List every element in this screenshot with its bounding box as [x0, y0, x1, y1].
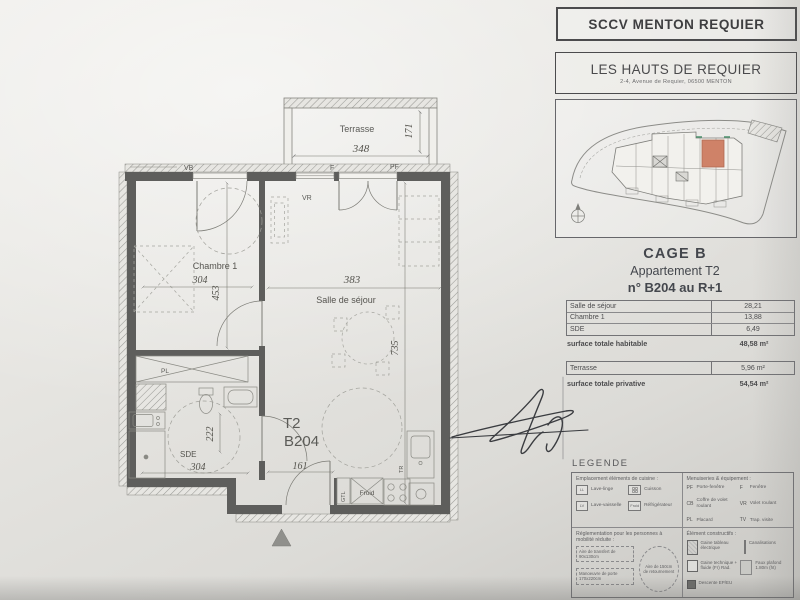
legend-construction-title: Élément constructifs : [687, 531, 791, 537]
cooktop-icon [628, 485, 641, 495]
froid-label: Réfrigérateur [644, 503, 678, 509]
legend-kitchen-title: Emplacement éléments de cuisine : [576, 476, 658, 482]
pipe-line-icon [744, 540, 746, 554]
bathroom-width-dim: 304 [190, 462, 206, 473]
vr-code: VR [302, 195, 312, 202]
habitable-total-label: surface totale habitable [566, 339, 713, 348]
pl-legend-label: Placard [696, 518, 736, 524]
bedroom-pmr-circle [196, 188, 262, 254]
terrace-left-wall [284, 108, 292, 170]
site-plan-box [555, 99, 797, 238]
pmr-door-box: Manoeuvre de porte 170x220cm [576, 568, 634, 584]
unit-header: CAGE B Appartement T2 n° B204 au R+1 [560, 246, 790, 295]
legend-item: Descente EP/EU [687, 580, 741, 589]
terrace-table: Terrasse 5,96 m² [566, 361, 795, 375]
bathroom-label: SDE [180, 450, 196, 459]
vb-window [193, 173, 247, 179]
lv-code-box: LV [576, 501, 588, 511]
bedroom: Chambre 1 304 453 [134, 183, 262, 348]
unit-m2: m² [760, 339, 769, 348]
site-annex-plot [748, 120, 782, 142]
ll-code-box: LL [576, 485, 588, 495]
f-code: F [330, 165, 334, 172]
site-plan [556, 100, 794, 235]
gtl-code: GTL [341, 491, 347, 502]
table-row: Chambre 1 13,88 [567, 312, 794, 324]
vb-code: VB [184, 165, 194, 172]
bedroom-width-dim: 304 [192, 275, 208, 286]
wardrobe-furniture [271, 197, 288, 243]
froid-code-box: Froid [628, 501, 641, 511]
electrical-cabinet-icon [687, 540, 698, 555]
terrace-label: Terrasse [340, 124, 375, 134]
area-value: 6,49 [711, 324, 794, 335]
bathroom: PL SDE 304 222 [129, 356, 257, 478]
unit-m2: m² [757, 365, 765, 372]
terrace-row-label: Terrasse [567, 365, 711, 372]
living-room: VR Salle de séjour 383 735 T2 B204 [268, 183, 440, 503]
false-ceiling-icon [740, 560, 752, 575]
pf-door [339, 173, 397, 179]
terrace-row-value: 5,96 [741, 365, 755, 372]
legend-item-label: Faux plafond 1.80m (ht) [755, 560, 790, 571]
bedroom-door-arc [217, 301, 262, 346]
project-title-box: LES HAUTS DE REQUIER 2-4, Avenue de Requ… [555, 52, 797, 94]
pf-legend-label: Porte-fenêtre [696, 485, 736, 491]
table-row: Salle de séjour 28,21 [567, 301, 794, 312]
pmr-turning-circle: Aire de 150cm de retournement [639, 546, 679, 592]
living-pmr-circle [322, 388, 402, 468]
area-label: SDE [567, 326, 711, 333]
legend-title: LEGENDE [572, 458, 629, 469]
tv-legend-code: TV [740, 517, 747, 523]
project-address: 2-4, Avenue de Requier, 06500 MENTON [620, 79, 732, 85]
area-value: 13,88 [711, 313, 794, 324]
bedroom-height-dim: 453 [211, 286, 222, 301]
tv-legend-label: Trap. visite [750, 518, 790, 524]
cb-legend-label: Coffre de volet roulant [696, 498, 736, 510]
project-title: LES HAUTS DE REQUIER [591, 62, 762, 77]
pf-legend-code: PF [687, 485, 694, 491]
froid-code: Froid [360, 490, 375, 497]
developer-title-box: SCCV MENTON REQUIER [556, 7, 797, 41]
legend-item: Canalisations [740, 540, 790, 555]
living-height-dim: 735 [390, 341, 401, 356]
areas-panel: Salle de séjour 28,21 Chambre 1 13,88 SD… [566, 300, 795, 388]
living-label: Salle de séjour [316, 295, 376, 305]
area-label: Salle de séjour [567, 303, 711, 310]
cb-legend-code: CB [687, 501, 694, 507]
legend-item-label: Gaine tableau électrique [701, 540, 741, 551]
apartment-type: Appartement T2 [560, 264, 790, 278]
legend-grid: Emplacement éléments de cuisine : LL Lav… [571, 472, 794, 598]
habitable-total-row: surface totale habitable 48,58 m² [566, 339, 795, 348]
cooktop-label: Cuisson [644, 487, 678, 493]
legend-item-label: Gaine technique + fluide (Fr) Rad. [701, 560, 741, 571]
pf-code: PF [390, 164, 399, 171]
table-furniture [332, 306, 399, 375]
vr-legend-label: Volet roulant [750, 501, 790, 507]
apartment-number: n° B204 au R+1 [560, 280, 790, 295]
privative-total-row: surface totale privative 54,54 m² [566, 379, 795, 388]
developer-title: SCCV MENTON REQUIER [588, 17, 764, 32]
legend-item: Faux plafond 1.80m (ht) [740, 560, 790, 575]
table-row: SDE 6,49 [567, 323, 794, 335]
highlighted-unit [702, 140, 724, 167]
hall-width-dim: 161 [293, 461, 308, 472]
privative-total-label: surface totale privative [566, 379, 713, 388]
ll-label: Lave-linge [591, 487, 625, 493]
legend-item-label: Descente EP/EU [699, 580, 733, 585]
legend-item: Gaine tableau électrique [687, 540, 741, 555]
bathroom-height-dim: 222 [205, 427, 216, 442]
f-legend-code: F [740, 485, 747, 491]
terrace-right-wall [429, 108, 437, 170]
pl-legend-code: PL [687, 517, 694, 523]
pl-code: PL [161, 368, 169, 375]
legend-joinery-cell: Menuiseries & équipement : PF Porte-fenê… [683, 473, 794, 528]
signature [450, 377, 588, 459]
areas-table: Salle de séjour 28,21 Chambre 1 13,88 SD… [566, 300, 795, 336]
f-legend-label: Fenêtre [750, 485, 790, 491]
terrace-width-dim: 348 [352, 143, 370, 155]
technical-duct-icon [687, 560, 698, 572]
unit-m2: m² [760, 379, 769, 388]
compass-icon [572, 204, 585, 223]
terrace-depth-dim: 171 [404, 124, 415, 139]
unit-id-line2: B204 [284, 433, 319, 450]
pmr-transfer-box: Aire de transfert de 90x130cm [576, 546, 634, 562]
legend-construction-cell: Élément constructifs : Gaine tableau éle… [683, 528, 794, 597]
legend-joinery-title: Menuiseries & équipement : [687, 476, 791, 482]
area-value: 28,21 [711, 301, 794, 312]
terrace: Terrasse 348 171 [284, 98, 437, 170]
table-row: Terrasse 5,96 m² [567, 362, 794, 374]
privative-total-value: 54,54 [740, 379, 758, 388]
bed-furniture [134, 246, 194, 312]
unit-id-line1: T2 [283, 415, 301, 432]
legend-pmr-title: Réglementation pour les personnes à mobi… [576, 531, 666, 543]
lv-label: Lave-vaisselle [591, 503, 625, 509]
entrance-marker [272, 529, 291, 546]
downpipe-icon [687, 580, 696, 589]
cage-title: CAGE B [560, 246, 790, 262]
area-label: Chambre 1 [567, 314, 711, 321]
legend-item: Gaine technique + fluide (Fr) Rad. [687, 560, 741, 575]
legend-kitchen-cell: Emplacement éléments de cuisine : LL Lav… [572, 473, 683, 528]
openings [193, 173, 397, 505]
bedroom-label: Chambre 1 [193, 261, 238, 271]
tr-code: TR [399, 466, 405, 473]
vr-legend-code: VR [740, 501, 747, 507]
habitable-total-value: 48,58 [740, 339, 758, 348]
legend-item-label: Canalisations [749, 540, 776, 545]
living-width-dim: 383 [343, 274, 361, 286]
terrace-top-wall [284, 98, 437, 108]
legend-pmr-cell: Réglementation pour les personnes à mobi… [572, 528, 683, 597]
